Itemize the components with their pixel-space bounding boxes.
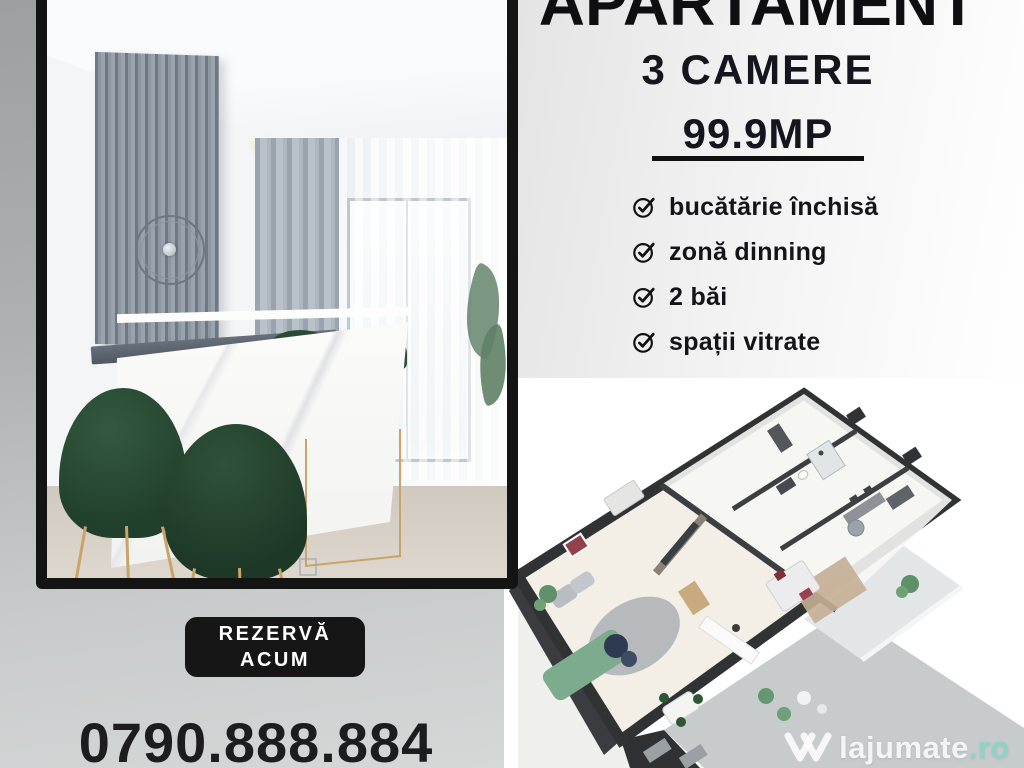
feature-item: zonă dinning <box>632 238 878 266</box>
floor-plan <box>504 378 1024 768</box>
feature-label: bucătărie închisă <box>669 193 878 222</box>
reserve-button[interactable]: REZERVĂ ACUM <box>185 617 365 677</box>
floor-plan-graphic <box>504 378 1024 768</box>
watermark-tld: .ro <box>969 730 1010 765</box>
photo-wall-clock <box>135 215 205 285</box>
feature-item: bucătărie închisă <box>632 193 878 221</box>
phone-number: 0790.888.884 <box>0 710 512 768</box>
area-underline <box>652 156 864 161</box>
lajumate-logo-icon <box>784 730 832 766</box>
feature-list: bucătărie închisă zonă dinning 2 băi <box>632 193 878 373</box>
area-subtitle: 99.9MP <box>518 110 998 158</box>
check-circle-icon <box>632 240 656 264</box>
photo-slat-wall-panel <box>95 52 219 348</box>
watermark-name: lajumate <box>839 730 969 765</box>
ad-poster: REZERVĂ ACUM 0790.888.884 APARTAMENT 3 C… <box>0 0 1024 768</box>
check-circle-icon <box>632 195 656 219</box>
check-circle-icon <box>632 330 656 354</box>
apartment-photo-frame <box>36 0 518 589</box>
reserve-button-line1: REZERVĂ <box>191 621 359 647</box>
feature-label: spații vitrate <box>669 328 820 357</box>
watermark-text: lajumate.ro <box>839 730 1010 766</box>
chair-leg <box>238 568 243 578</box>
feature-item: 2 băi <box>632 283 878 311</box>
check-circle-icon <box>632 285 656 309</box>
left-column: REZERVĂ ACUM 0790.888.884 <box>0 0 518 768</box>
feature-label: zonă dinning <box>669 238 827 267</box>
photo-table-gold-frame <box>305 429 401 567</box>
title-block: APARTAMENT 3 CAMERE 99.9MP <box>518 0 998 40</box>
feature-label: 2 băi <box>669 283 727 312</box>
clock-hub <box>163 243 176 256</box>
rooms-subtitle: 3 CAMERE <box>518 46 998 94</box>
page-title: APARTAMENT <box>518 0 998 40</box>
apartment-photo <box>47 0 507 578</box>
feature-item: spații vitrate <box>632 328 878 356</box>
reserve-button-line2: ACUM <box>191 647 359 673</box>
watermark: lajumate.ro <box>784 730 1010 766</box>
render-logo-stamp <box>299 558 317 576</box>
